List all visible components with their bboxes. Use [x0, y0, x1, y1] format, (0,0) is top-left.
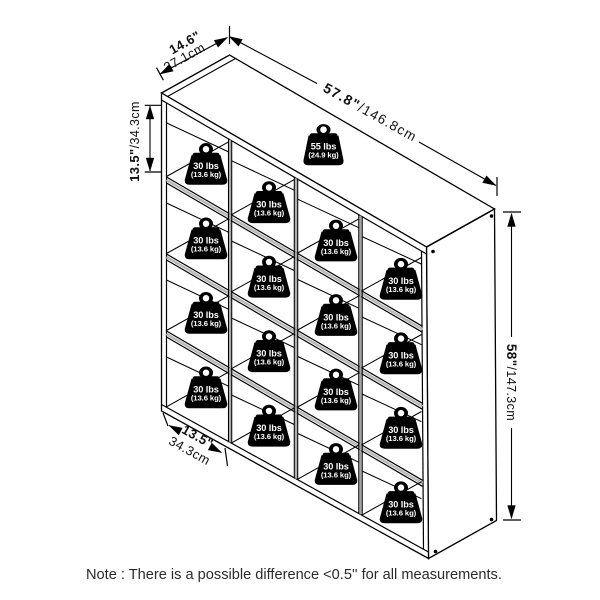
svg-text:(13.6 kg): (13.6 kg) — [386, 285, 417, 294]
svg-text:(13.6 kg): (13.6 kg) — [191, 394, 222, 403]
svg-text:(13.6 kg): (13.6 kg) — [254, 358, 285, 367]
svg-text:(13.6 kg): (13.6 kg) — [321, 396, 352, 405]
svg-text:(13.6 kg): (13.6 kg) — [191, 170, 222, 179]
svg-text:(13.6 kg): (13.6 kg) — [191, 245, 222, 254]
svg-text:(13.6 kg): (13.6 kg) — [386, 360, 417, 369]
svg-text:(13.6 kg): (13.6 kg) — [386, 509, 417, 518]
svg-text:(13.6 kg): (13.6 kg) — [386, 434, 417, 443]
svg-text:13.5"/34.3cm: 13.5"/34.3cm — [127, 101, 142, 182]
svg-text:(13.6 kg): (13.6 kg) — [321, 470, 352, 479]
svg-text:(13.6 kg): (13.6 kg) — [191, 319, 222, 328]
svg-text:Note : There is a possible dif: Note : There is a possible difference <0… — [86, 567, 502, 583]
svg-text:(24.9 kg): (24.9 kg) — [308, 151, 339, 160]
svg-text:(13.6 kg): (13.6 kg) — [254, 209, 285, 218]
svg-text:(13.6 kg): (13.6 kg) — [254, 283, 285, 292]
svg-text:(13.6 kg): (13.6 kg) — [321, 321, 352, 330]
svg-text:(13.6 kg): (13.6 kg) — [254, 432, 285, 441]
svg-text:58"/147.3cm: 58"/147.3cm — [504, 344, 519, 421]
svg-text:(13.6 kg): (13.6 kg) — [321, 247, 352, 256]
